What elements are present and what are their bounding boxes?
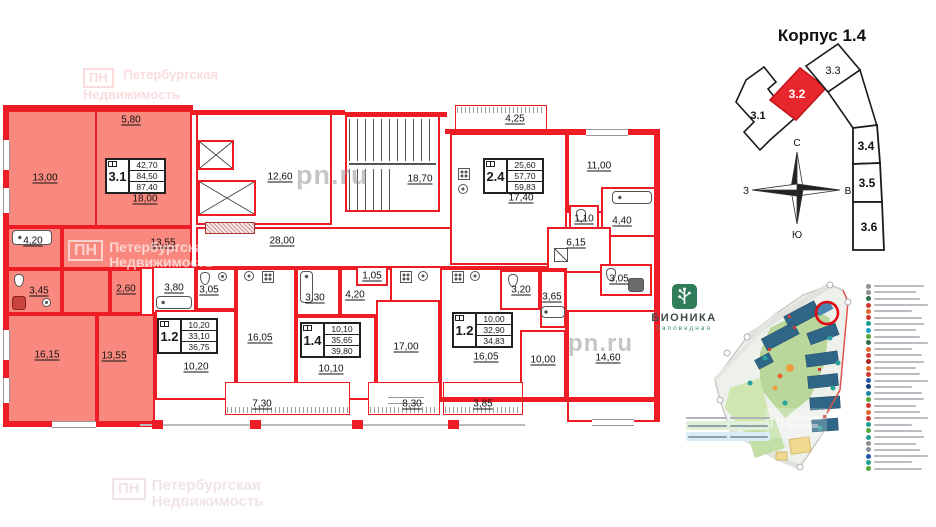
legend-label-placeholder (874, 461, 912, 463)
legend-marker-icon (866, 466, 871, 471)
balcony-rail-hatch (457, 107, 545, 113)
legend-marker-icon (866, 403, 871, 408)
bathtub-icon (541, 306, 565, 318)
wall-post (352, 420, 363, 429)
area-label: 18,70 (407, 174, 432, 185)
legend-label-placeholder (874, 323, 924, 325)
area-label: 17,40 (508, 193, 533, 204)
legend-label-placeholder (874, 443, 916, 445)
shower-tray-icon (12, 296, 26, 310)
legend-marker-icon (866, 416, 871, 421)
legend-label-placeholder (874, 310, 912, 312)
pn-logo-icon: ПН (112, 478, 146, 500)
balcony-rail-hatch (227, 407, 348, 413)
area-label: 3,05 (609, 274, 628, 285)
legend-marker-icon (866, 366, 871, 371)
area-label: 13,00 (32, 173, 57, 184)
apartment-type: 3.1 (108, 169, 126, 184)
project-logo: БИОНИКА Заповедная (648, 284, 720, 332)
wall-post (250, 420, 261, 429)
legend-marker-icon (866, 397, 871, 402)
legend-marker-icon (866, 460, 871, 465)
window (52, 421, 96, 428)
room-13-55 (97, 314, 155, 425)
area-label: 8,30 (402, 399, 421, 410)
legend-marker-icon (866, 303, 871, 308)
site-map-yellow-building (789, 437, 811, 455)
area-label: 3,80 (164, 283, 183, 294)
entrance-symbol (205, 222, 255, 234)
area-label: 2,60 (116, 284, 135, 295)
watermark-brand-bottom: ПН Петербургская Недвижимость (112, 478, 263, 510)
legend-marker-icon (866, 441, 871, 446)
site-map-mini-table (686, 417, 770, 443)
legend-label-placeholder (874, 348, 912, 350)
balcony-7-30 (225, 382, 350, 415)
legend-label-placeholder (874, 304, 928, 306)
area-label: 10,10 (318, 364, 343, 375)
plan-grid-icon (108, 161, 117, 167)
area-value: 25,60 (508, 160, 542, 171)
window (586, 129, 628, 136)
area-value: 57,70 (508, 171, 542, 182)
legend-label-placeholder (874, 291, 916, 293)
building-scheme: 3.1 3.2 3.3 3.4 3.5 3.6 С Ю З В (718, 12, 936, 257)
legend-label-placeholder (874, 405, 916, 407)
area-label: 1,10 (574, 214, 593, 225)
compass-icon (752, 152, 840, 224)
legend-marker-icon (866, 422, 871, 427)
plan-grid-icon (486, 161, 495, 167)
area-label: 12,60 (267, 172, 292, 183)
scheme-section-label: 3.2 (789, 87, 806, 101)
legend-label-placeholder (874, 380, 928, 382)
legend-marker-icon (866, 447, 871, 452)
plan-grid-icon (303, 325, 312, 331)
area-label: 13,55 (101, 351, 126, 362)
scheme-title: Корпус 1.4 (762, 26, 882, 46)
area-label: 4,25 (505, 114, 524, 125)
legend-label-placeholder (874, 367, 916, 369)
legend-label-placeholder (874, 449, 920, 451)
area-value: 84,50 (130, 171, 164, 182)
svg-text:ПН: ПН (770, 415, 790, 431)
legend-label-placeholder (874, 455, 928, 457)
area-label: 28,00 (269, 236, 294, 247)
watermark-map: ПН (765, 408, 827, 438)
legend-label-placeholder (874, 424, 912, 426)
legend-label-placeholder (874, 436, 924, 438)
plan-grid-icon (455, 315, 464, 321)
room-14-60 (567, 310, 658, 422)
sink-icon (42, 298, 51, 307)
area-label: 18,00 (132, 194, 157, 205)
legend-marker-icon (866, 359, 871, 364)
legend-marker-icon (866, 296, 871, 301)
scheme-section-label: 3.1 (750, 110, 765, 122)
area-label: 3,30 (305, 293, 324, 304)
wall-post (152, 420, 163, 429)
window (3, 330, 10, 360)
stove-icon (452, 271, 464, 283)
legend-marker-icon (866, 353, 871, 358)
legend-marker-icon (866, 384, 871, 389)
sink-icon (458, 184, 468, 194)
area-label: 16,05 (473, 352, 498, 363)
window (3, 140, 10, 170)
legend-marker-icon (866, 321, 871, 326)
legend-label-placeholder (874, 430, 922, 432)
legend-label-placeholder (874, 386, 912, 388)
area-label: 1,05 (362, 271, 381, 282)
legend-marker-icon (866, 410, 871, 415)
legend-marker-icon (866, 309, 871, 314)
apartment-type: 1.2 (455, 323, 473, 338)
floor-plan-page: 3.1 42,7084,5087,40 2.4 25,6057,7059,83 … (0, 0, 936, 527)
outer-wall (345, 112, 447, 117)
outer-wall (654, 129, 660, 422)
legend-label-placeholder (874, 354, 922, 356)
stair-steps (349, 169, 397, 210)
legend-label-placeholder (874, 298, 920, 300)
legend-label-placeholder (874, 373, 920, 375)
legend-label-placeholder (874, 398, 924, 400)
legend-label-placeholder (874, 342, 928, 344)
stair-steps (349, 119, 436, 161)
window (3, 188, 10, 213)
legend-marker-icon (866, 328, 871, 333)
stove-icon (262, 271, 274, 283)
logo-title: БИОНИКА (648, 312, 720, 324)
area-value: 33,10 (182, 331, 216, 342)
apartment-type: 1.2 (160, 329, 178, 344)
area-label: 14,60 (595, 353, 620, 364)
mini-table-header (686, 417, 770, 419)
mini-table-row-blue (686, 432, 770, 441)
compass-north-label: С (793, 138, 800, 149)
area-value: 10,00 (477, 314, 511, 325)
area-value: 35,65 (325, 335, 359, 346)
outer-wall (3, 105, 193, 111)
apartment-info-1-2-left: 1.2 10,2033,1036,75 (157, 318, 218, 354)
compass-east-label: В (845, 186, 852, 197)
scheme-section-label: 3.5 (859, 176, 876, 190)
sink-icon (244, 271, 254, 281)
legend-label-placeholder (874, 417, 928, 419)
legend-marker-icon (866, 334, 871, 339)
legend-marker-icon (866, 284, 871, 289)
legend-marker-icon (866, 391, 871, 396)
area-label: 7,30 (252, 399, 271, 410)
legend-marker-icon (866, 435, 871, 440)
shower-icon (554, 248, 568, 262)
sink-icon (470, 271, 480, 281)
shower-cabin-icon (628, 278, 644, 292)
apartment-type: 2.4 (486, 169, 504, 184)
site-map-yellow-building (776, 452, 787, 460)
area-label: 3,45 (29, 286, 48, 297)
window (3, 378, 10, 403)
legend-marker-icon (866, 378, 871, 383)
elevator-shaft-1 (198, 140, 234, 170)
legend-label-placeholder (874, 468, 922, 470)
bathtub-icon (156, 296, 192, 309)
area-label: 10,20 (183, 362, 208, 373)
area-value: 59,83 (508, 182, 542, 192)
area-value: 36,75 (182, 342, 216, 352)
watermark-brand-faint-top: ПН Петербургская Недвижимость (83, 68, 218, 102)
mini-table-row-green (686, 421, 770, 430)
area-value: 10,10 (325, 324, 359, 335)
logo-subtitle: Заповедная (648, 325, 720, 332)
apartment-info-1-2-right: 1.2 10,0032,9034,83 (452, 312, 513, 348)
area-value: 87,40 (130, 182, 164, 192)
legend-label-placeholder (874, 361, 924, 363)
legend-label-placeholder (874, 285, 924, 287)
area-label: 11,00 (587, 161, 611, 172)
area-label: 3,85 (473, 399, 492, 410)
legend-label-placeholder (874, 329, 916, 331)
area-value: 32,90 (477, 325, 511, 336)
area-label: 6,15 (566, 238, 585, 249)
area-label: 3,65 (542, 292, 561, 303)
site-map-legend (866, 283, 934, 472)
area-label: 3,05 (199, 285, 218, 296)
area-label: 4,20 (23, 236, 42, 247)
compass-south-label: Ю (792, 230, 802, 241)
legend-label-placeholder (874, 392, 922, 394)
legend-item (866, 466, 934, 472)
area-label: 16,15 (34, 350, 59, 361)
area-label: 17,00 (393, 342, 418, 353)
window (592, 419, 634, 426)
bionika-tree-icon (672, 284, 697, 309)
corridor-fill (62, 269, 110, 314)
sink-icon (418, 271, 428, 281)
apartment-type: 1.4 (303, 333, 321, 348)
room-13-00 (7, 110, 97, 227)
stove-icon (400, 271, 412, 283)
legend-marker-icon (866, 428, 871, 433)
area-label: 10,00 (530, 355, 555, 366)
legend-marker-icon (866, 372, 871, 377)
apartment-info-3-1: 3.1 42,7084,5087,40 (105, 158, 166, 194)
area-label: 13,55 (150, 238, 175, 249)
wall-post (448, 420, 459, 429)
legend-marker-icon (866, 315, 871, 320)
legend-marker-icon (866, 347, 871, 352)
legend-label-placeholder (874, 411, 920, 413)
room-16-15 (7, 314, 97, 425)
area-label: 4,20 (345, 290, 364, 301)
area-value: 42,70 (130, 160, 164, 171)
apartment-info-2-4: 2.4 25,6057,7059,83 (483, 158, 544, 194)
outer-wall (190, 110, 345, 115)
balcony-base-line (140, 424, 525, 426)
apartment-info-1-4: 1.4 10,1035,6539,80 (300, 322, 361, 358)
scheme-section-label: 3.4 (858, 139, 875, 153)
area-label: 3,20 (511, 285, 530, 296)
pn-logo-icon: ПН (83, 68, 114, 88)
sink-icon (218, 272, 227, 281)
legend-label-placeholder (874, 317, 922, 319)
compass-west-label: З (743, 186, 749, 197)
area-label: 16,05 (247, 333, 272, 344)
area-value: 39,80 (325, 346, 359, 356)
area-value: 10,20 (182, 320, 216, 331)
stove-icon (458, 168, 470, 180)
scheme-section-label: 3.3 (825, 65, 840, 77)
area-value: 34,83 (477, 336, 511, 346)
staircase-18-70 (345, 115, 440, 212)
area-label: 4,40 (612, 216, 631, 227)
plan-grid-icon (160, 321, 169, 327)
elevator-shaft-2 (198, 180, 256, 216)
scheme-section-label: 3.6 (861, 220, 878, 234)
legend-marker-icon (866, 454, 871, 459)
legend-marker-icon (866, 340, 871, 345)
legend-label-placeholder (874, 336, 920, 338)
legend-marker-icon (866, 290, 871, 295)
area-label: 5,80 (121, 115, 140, 126)
bathtub-icon (612, 191, 652, 204)
